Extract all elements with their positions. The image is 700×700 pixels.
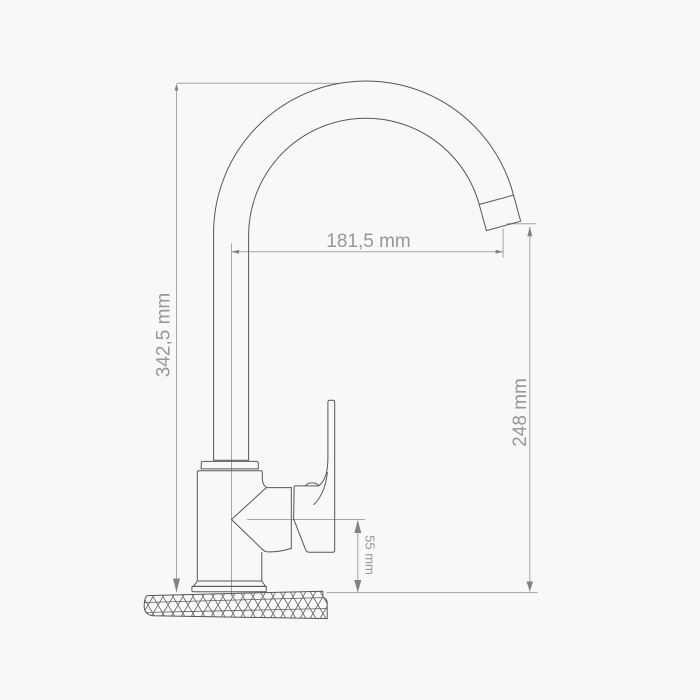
svg-text:248 mm: 248 mm (510, 378, 531, 447)
svg-text:55 mm: 55 mm (363, 535, 378, 575)
svg-text:181,5 mm: 181,5 mm (326, 231, 410, 252)
svg-text:342,5 mm: 342,5 mm (154, 293, 175, 377)
